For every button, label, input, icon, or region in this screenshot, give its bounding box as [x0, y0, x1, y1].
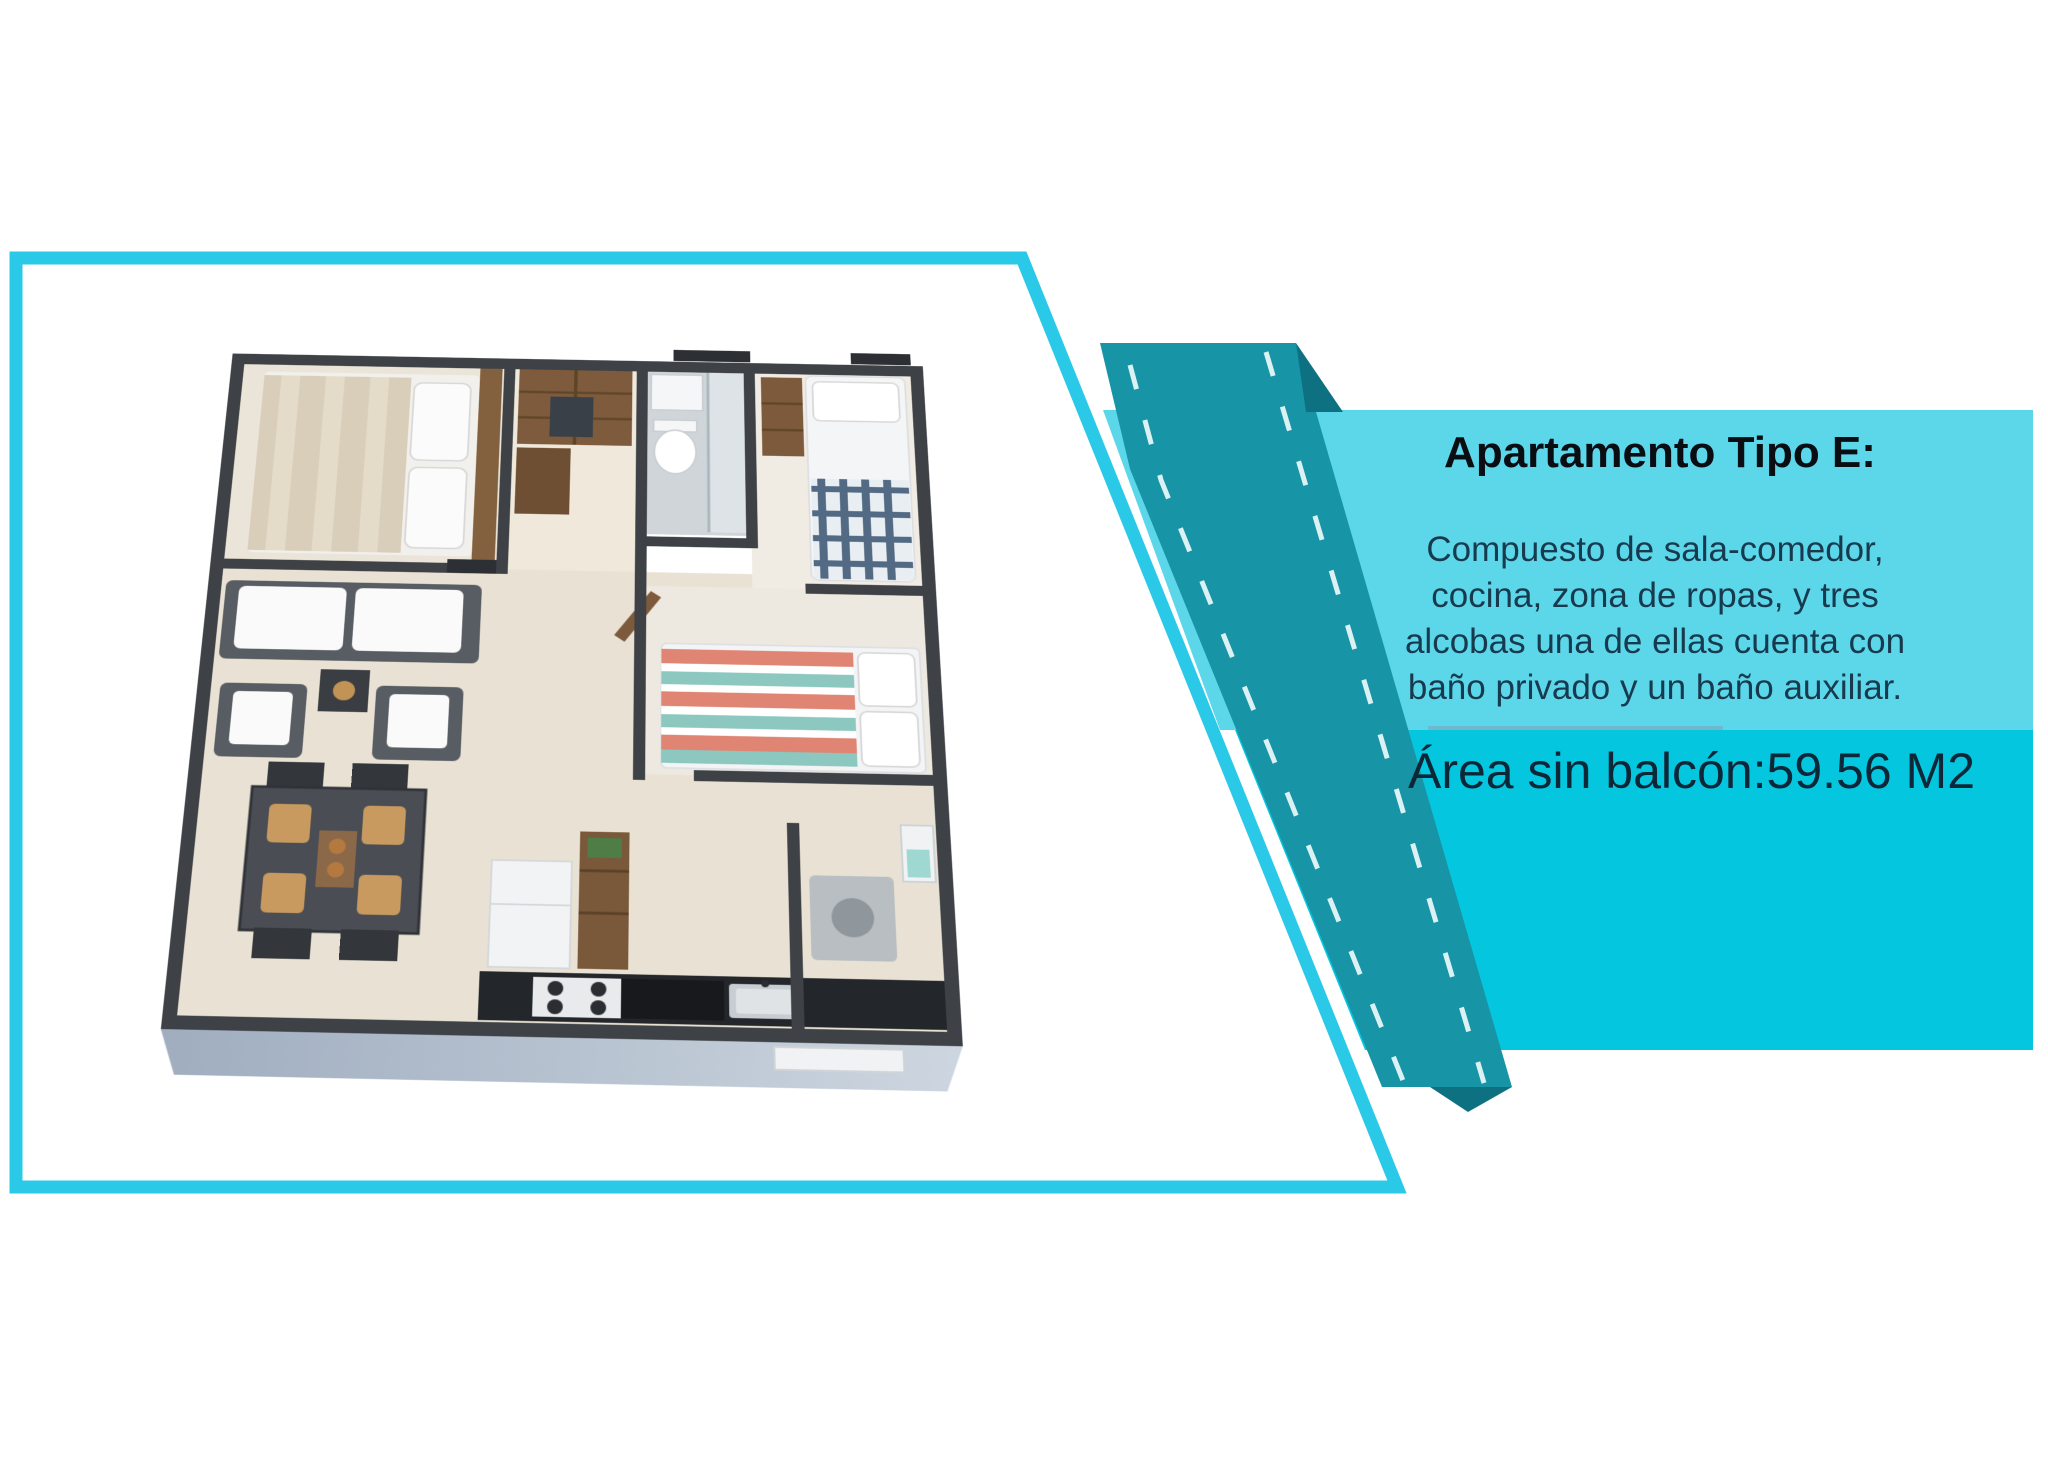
- description-line: baño privado y un baño auxiliar.: [1330, 665, 1980, 711]
- road-fold-bottom-icon: [1430, 1087, 1512, 1112]
- dining-area: [237, 761, 428, 961]
- floor-plan: [76, 321, 1046, 1095]
- description-line: alcobas una de ellas cuenta con: [1330, 619, 1980, 665]
- apartment-description: Compuesto de sala-comedor, cocina, zona …: [1330, 527, 1980, 711]
- area-text: Área sin balcón:59.56 M2: [1408, 742, 2048, 800]
- master-bedroom: [247, 365, 503, 563]
- description-line: Compuesto de sala-comedor,: [1330, 527, 1980, 573]
- apartment-title: Apartamento Tipo E:: [1320, 428, 2000, 478]
- description-line: cocina, zona de ropas, y tres: [1330, 573, 1980, 619]
- flyer-canvas: Apartamento Tipo E: Compuesto de sala-co…: [0, 0, 2048, 1462]
- floor-plan-drawing: [76, 321, 1046, 1095]
- door-sill: [774, 1047, 904, 1073]
